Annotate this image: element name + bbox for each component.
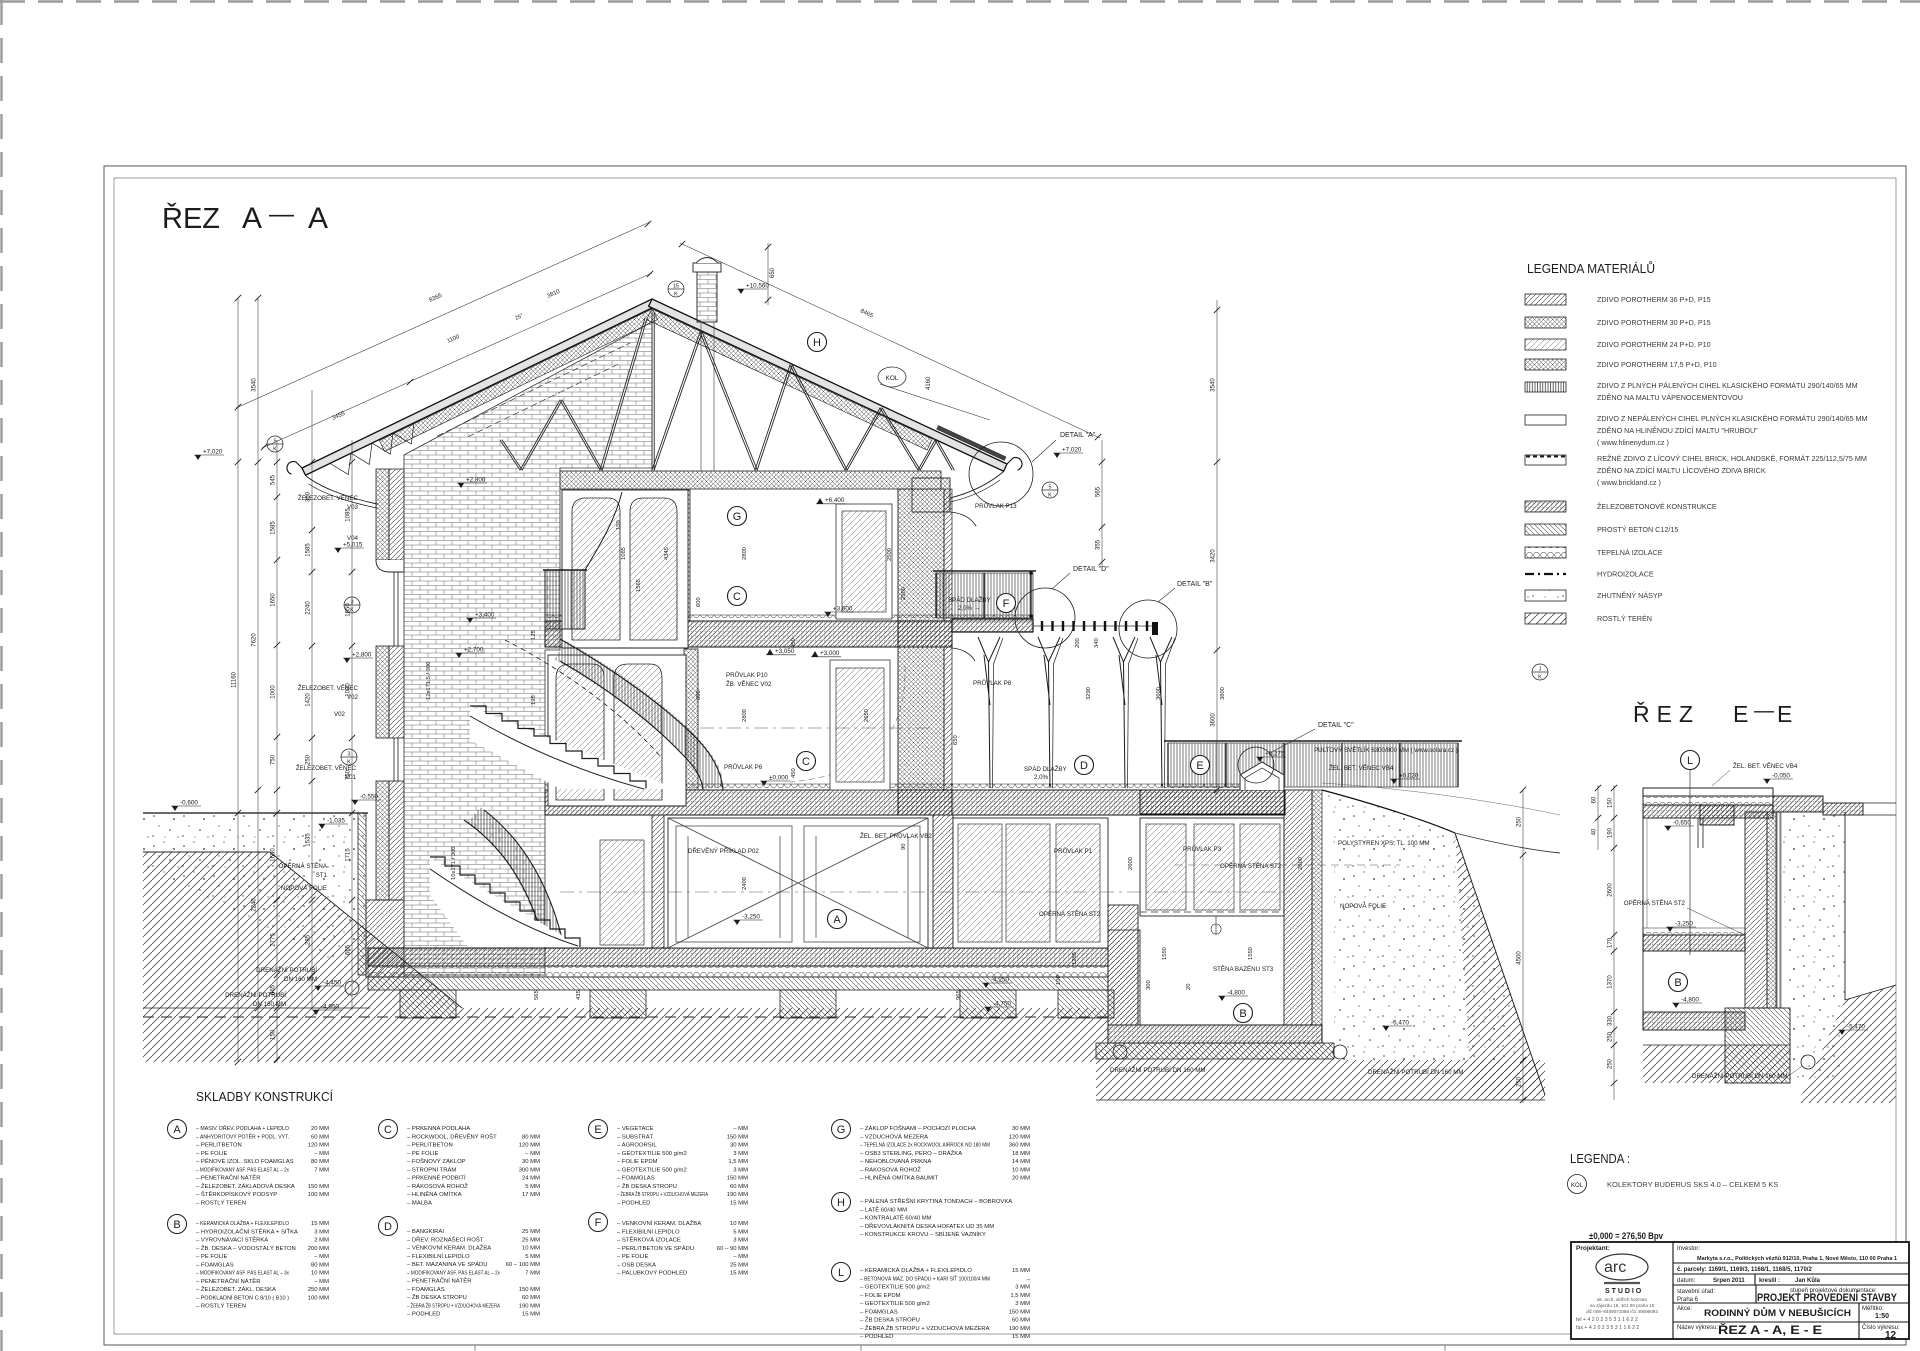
svg-text:2240: 2240: [306, 601, 312, 615]
svg-text:– HLINĚNÁ OMÍTKA BAUMIT: – HLINĚNÁ OMÍTKA BAUMIT: [860, 1174, 939, 1182]
svg-text:ZDIVO POROTHERM 30 P+D, P15: ZDIVO POROTHERM 30 P+D, P15: [1597, 318, 1711, 327]
svg-text:100 MM: 100 MM: [308, 1295, 329, 1301]
svg-text:+7,020: +7,020: [1062, 447, 1082, 454]
svg-text:+3,600: +3,600: [833, 606, 853, 613]
svg-text:30 MM: 30 MM: [1012, 1126, 1030, 1132]
svg-text:340: 340: [1094, 638, 1100, 648]
svg-text:– PERLITBETON VE SPÁDU: – PERLITBETON VE SPÁDU: [617, 1245, 694, 1252]
svg-text:– VZDUCHOVÁ MEZERA: – VZDUCHOVÁ MEZERA: [860, 1133, 928, 1140]
svg-text:330: 330: [1608, 1015, 1614, 1026]
svg-text:150: 150: [271, 1029, 277, 1040]
svg-text:4160: 4160: [926, 376, 932, 390]
svg-text:150: 150: [1608, 797, 1614, 808]
svg-text:355: 355: [1096, 539, 1102, 550]
svg-text:360 MM: 360 MM: [1009, 1143, 1030, 1149]
svg-text:ŽEL. BET. VĚNEC VB4: ŽEL. BET. VĚNEC VB4: [1329, 764, 1394, 772]
svg-text:250: 250: [1608, 1058, 1614, 1069]
svg-text:Měřítko:: Měřítko:: [1862, 1306, 1884, 1312]
svg-text:120 MM: 120 MM: [1009, 1134, 1030, 1140]
svg-text:190 MM: 190 MM: [519, 1303, 540, 1309]
svg-text:4345: 4345: [664, 547, 670, 560]
svg-text:+2,800: +2,800: [352, 652, 372, 659]
svg-text:30 MM: 30 MM: [522, 1159, 540, 1165]
svg-text:-4,450: -4,450: [323, 980, 341, 987]
svg-text:3290: 3290: [1086, 687, 1092, 700]
svg-text:– PĚNOVÉ IZOL. SKLO FOAMGLAS: – PĚNOVÉ IZOL. SKLO FOAMGLAS: [196, 1157, 294, 1165]
svg-text:– PERLITBETON: – PERLITBETON: [407, 1143, 453, 1149]
svg-text:– MM: – MM: [314, 1279, 329, 1285]
svg-text:NOPOVÁ FOLIE: NOPOVÁ FOLIE: [281, 885, 327, 892]
svg-text:– PE FOLIE: – PE FOLIE: [407, 1151, 439, 1157]
svg-text:15 MM: 15 MM: [1012, 1334, 1030, 1340]
svg-text:– PALUBKOVÝ PODHLED: – PALUBKOVÝ PODHLED: [617, 1270, 687, 1277]
svg-text:200 MM: 200 MM: [308, 1246, 329, 1252]
svg-text:14 MM: 14 MM: [1012, 1159, 1030, 1165]
svg-text:15 MM: 15 MM: [522, 1312, 540, 1318]
svg-text:REŽNÉ ZDIVO Z LÍCOVÝ CIHEL BRI: REŽNÉ ZDIVO Z LÍCOVÝ CIHEL BRICK, HOLAND…: [1597, 454, 1867, 463]
svg-text:– NEHOBLOVANÁ PRKNA: – NEHOBLOVANÁ PRKNA: [860, 1158, 931, 1165]
svg-text:150 MM: 150 MM: [519, 1287, 540, 1293]
svg-text:250: 250: [1608, 1031, 1614, 1042]
svg-text:300 MM: 300 MM: [519, 1167, 540, 1173]
svg-text:565: 565: [1096, 486, 1102, 497]
svg-text:125: 125: [531, 630, 537, 640]
svg-text:stavební úřad:: stavební úřad:: [1677, 1289, 1715, 1295]
svg-text:– PENETRAČNÍ NÁTĚR: – PENETRAČNÍ NÁTĚR: [196, 1174, 260, 1182]
svg-text:750: 750: [346, 769, 352, 780]
svg-text:– GEOTEXTILIE 500 g/m2: – GEOTEXTILIE 500 g/m2: [617, 1167, 687, 1173]
svg-text:-0,600: -0,600: [180, 800, 198, 807]
svg-text:1650: 1650: [271, 848, 277, 862]
svg-text:KOL: KOL: [885, 375, 898, 382]
svg-text:285: 285: [306, 934, 312, 945]
svg-text:arc: arc: [1604, 1259, 1626, 1276]
svg-text:č. parcely: 1169/1, 1169/3, 1: č. parcely: 1169/1, 1169/3, 1168/1, 1168…: [1677, 1267, 1812, 1273]
svg-text:600: 600: [696, 690, 702, 700]
svg-text:– ROSTLÝ TERÉN: – ROSTLÝ TERÉN: [196, 1303, 246, 1310]
svg-text:A: A: [833, 914, 841, 926]
svg-text:B: B: [173, 1219, 180, 1231]
svg-text:3 MM: 3 MM: [733, 1167, 748, 1173]
svg-text:750: 750: [271, 754, 277, 765]
svg-text:E: E: [1777, 701, 1792, 727]
svg-text:3540: 3540: [252, 378, 258, 392]
svg-text:– PODHLED: – PODHLED: [617, 1200, 650, 1206]
svg-text:F: F: [1003, 598, 1010, 610]
svg-text:– PERLITBETON: – PERLITBETON: [196, 1143, 242, 1149]
svg-text:ŘEZ A - A, E - E: ŘEZ A - A, E - E: [1718, 1324, 1822, 1337]
svg-text:2600: 2600: [1128, 857, 1134, 870]
svg-text:ZDIVO POROTHERM 36 P+D, P15: ZDIVO POROTHERM 36 P+D, P15: [1597, 295, 1711, 304]
svg-text:2650: 2650: [864, 709, 870, 722]
svg-text:fax + 4 2 0 2 3 5 3 1 1 6: fax + 4 2 0 2 3 5 3 1 1 6 2 2: [1576, 1325, 1639, 1331]
svg-text:15: 15: [673, 284, 679, 290]
svg-text:– FOAMGLAS: – FOAMGLAS: [196, 1262, 234, 1268]
svg-text:250: 250: [306, 754, 312, 765]
svg-text:SKLADBY KONSTRUKCÍ: SKLADBY KONSTRUKCÍ: [196, 1089, 333, 1104]
svg-text:5 MM: 5 MM: [525, 1254, 540, 1260]
svg-text:POLYSTYREN XPS, TL. 100 MM: POLYSTYREN XPS, TL. 100 MM: [1338, 840, 1430, 847]
svg-text:DŘEVĚNÝ PŘÍKLAD P02: DŘEVĚNÝ PŘÍKLAD P02: [688, 847, 759, 855]
svg-text:1715: 1715: [346, 848, 352, 862]
svg-text:3600: 3600: [1211, 713, 1217, 727]
svg-text:3600: 3600: [1156, 687, 1162, 700]
svg-text:– KERAMICKÁ DLAŽBA + FLEXILEPI: – KERAMICKÁ DLAŽBA + FLEXILEPIDLO: [860, 1266, 972, 1274]
svg-text:+2,800: +2,800: [466, 477, 486, 484]
svg-text:10 MM: 10 MM: [522, 1246, 540, 1252]
svg-text:Investor:: Investor:: [1677, 1246, 1700, 1252]
svg-text:B: B: [1239, 1008, 1246, 1020]
svg-text:ROSTLÝ TERÉN: ROSTLÝ TERÉN: [1597, 614, 1652, 623]
svg-text:– GEOTEXTILIE 500 g/m2: – GEOTEXTILIE 500 g/m2: [860, 1285, 930, 1291]
svg-text:+3,400: +3,400: [475, 612, 495, 619]
svg-text:tel + 4 2 0 2 3 5 3 1 1 6: tel + 4 2 0 2 3 5 3 1 1 6 2 2: [1576, 1317, 1638, 1323]
svg-text:—: —: [1754, 700, 1774, 722]
svg-text:150 MM: 150 MM: [1009, 1309, 1030, 1315]
svg-text:C: C: [802, 756, 810, 768]
svg-text:J: J: [1539, 667, 1542, 673]
svg-text:-4,800: -4,800: [1227, 990, 1245, 997]
svg-text:10 MM: 10 MM: [730, 1221, 748, 1227]
svg-text:1535: 1535: [306, 833, 312, 847]
svg-text:100 MM: 100 MM: [308, 1192, 329, 1198]
svg-text:– MM: – MM: [733, 1254, 748, 1260]
svg-text:1085: 1085: [621, 547, 627, 560]
svg-text:10x171 / 300: 10x171 / 300: [451, 846, 457, 880]
svg-text:12: 12: [1885, 1330, 1897, 1341]
svg-text:– VEGETACE: – VEGETACE: [617, 1126, 654, 1132]
svg-text:-5,470: -5,470: [1391, 1020, 1409, 1027]
svg-text:-0,050: -0,050: [1772, 773, 1790, 780]
svg-text:150 MM: 150 MM: [727, 1134, 748, 1140]
svg-text:( www.brickland.cz ): ( www.brickland.cz ): [1597, 478, 1661, 487]
svg-text:V02: V02: [334, 711, 346, 718]
svg-text:dič 006–6409071086 ičo 4069609: dič 006–6409071086 ičo 40696093: [1586, 1309, 1658, 1314]
svg-text:1565: 1565: [636, 579, 642, 592]
svg-text:L: L: [838, 1267, 844, 1279]
svg-text:NOPOVÁ FOLIE: NOPOVÁ FOLIE: [1340, 903, 1386, 910]
svg-text:ZDĚNO NA ZDÍCÍ MALTU LÍCOVÉHO: ZDĚNO NA ZDÍCÍ MALTU LÍCOVÉHO ZDIVA BRIC…: [1597, 466, 1766, 475]
svg-text:– FOAMGLAS: – FOAMGLAS: [407, 1287, 445, 1293]
svg-text:STĚNA BAZÉNU ST3: STĚNA BAZÉNU ST3: [1213, 965, 1274, 973]
svg-text:LEGENDA :: LEGENDA :: [1570, 1151, 1630, 1166]
svg-text:ZHUTNĚNÝ NÁSYP: ZHUTNĚNÝ NÁSYP: [1597, 591, 1663, 600]
svg-text:– ŽEBRA ŽB STROPU + VZDUCHOVÁ: – ŽEBRA ŽB STROPU + VZDUCHOVÁ MEZERA: [617, 1190, 708, 1198]
svg-text:ŽEL. BET. VĚNEC VB4: ŽEL. BET. VĚNEC VB4: [1733, 762, 1798, 770]
svg-text:60 – 100 MM: 60 – 100 MM: [506, 1262, 540, 1268]
svg-text:SPÁD DLAŽBY: SPÁD DLAŽBY: [1024, 765, 1067, 773]
svg-text:– ŠTĚRKOPÍSKOVÝ PODSYP: – ŠTĚRKOPÍSKOVÝ PODSYP: [196, 1190, 277, 1198]
svg-text:-5,470: -5,470: [1847, 1024, 1865, 1031]
svg-text:ZDĚNO NA HLINĚNOU ZDÍCÍ MALTU: ZDĚNO NA HLINĚNOU ZDÍCÍ MALTU "HRUBOU": [1597, 426, 1758, 435]
svg-text:Praha 6: Praha 6: [1677, 1297, 1699, 1303]
svg-text:2240: 2240: [252, 898, 258, 912]
svg-text:G: G: [733, 511, 742, 523]
svg-text:450: 450: [791, 638, 797, 648]
svg-text:K: K: [1538, 675, 1542, 681]
svg-text:– KONSTRUKCE KROVU – SBÍJENÉ V: – KONSTRUKCE KROVU – SBÍJENÉ VAZNÍKY: [860, 1231, 986, 1238]
svg-text:ST1: ST1: [316, 872, 328, 879]
svg-text:150: 150: [616, 520, 622, 530]
svg-text:190 MM: 190 MM: [1009, 1326, 1030, 1332]
svg-text:OPĚRNÁ STĚNA ST2: OPĚRNÁ STĚNA ST2: [1220, 862, 1282, 870]
svg-text:B: B: [1674, 977, 1681, 989]
svg-text:KOLEKTORY BUDERUS SKS 4.0 – CE: KOLEKTORY BUDERUS SKS 4.0 – CELKEM 5 KS: [1607, 1180, 1778, 1189]
svg-text:7 MM: 7 MM: [314, 1167, 329, 1173]
svg-text:+7,020: +7,020: [203, 449, 223, 456]
svg-text:-4,250: -4,250: [991, 977, 1009, 984]
svg-text:2600: 2600: [1298, 857, 1304, 870]
svg-text:– PODHLED: – PODHLED: [407, 1312, 440, 1318]
svg-text:– SUBSTRÁT: – SUBSTRÁT: [617, 1133, 654, 1140]
svg-text:DETAIL "B": DETAIL "B": [1177, 581, 1213, 588]
svg-text:250: 250: [1517, 1076, 1523, 1087]
svg-text:H: H: [813, 337, 821, 349]
svg-text:—: —: [269, 200, 294, 228]
svg-text:– GEOTEXTILIE 500 g/m2: – GEOTEXTILIE 500 g/m2: [617, 1151, 687, 1157]
svg-text:+3,000: +3,000: [820, 650, 840, 657]
svg-text:– MM: – MM: [733, 1126, 748, 1132]
svg-text:– HYDROIZOLAČNÍ STĚRKA + SÍŤKA: – HYDROIZOLAČNÍ STĚRKA + SÍŤKA: [196, 1227, 298, 1235]
svg-text:DRENÁŽNÍ POTRUBÍ: DRENÁŽNÍ POTRUBÍ: [256, 966, 317, 974]
svg-text:– FLEXIBILNÍ LEPIDLO: – FLEXIBILNÍ LEPIDLO: [617, 1228, 680, 1235]
svg-text:2,0% →: 2,0% →: [958, 605, 980, 612]
svg-text:– MM: – MM: [525, 1151, 540, 1157]
svg-text:2400: 2400: [742, 877, 748, 890]
svg-text:600: 600: [696, 597, 702, 607]
svg-text:60 MM: 60 MM: [311, 1134, 329, 1140]
svg-text:– MASIV. DŘEV. PODLAHA + LEPID: – MASIV. DŘEV. PODLAHA + LEPIDLO: [196, 1124, 289, 1132]
svg-text:– PENETRAČNÍ NÁTĚR: – PENETRAČNÍ NÁTĚR: [196, 1277, 260, 1285]
svg-text:E: E: [1733, 701, 1748, 727]
svg-text:( www.hlinenydum.cz ): ( www.hlinenydum.cz ): [1597, 438, 1669, 447]
svg-text:SPÁD DLAŽBY: SPÁD DLAŽBY: [948, 596, 991, 604]
svg-text:25 MM: 25 MM: [522, 1229, 540, 1235]
svg-text:250 MM: 250 MM: [308, 1287, 329, 1293]
svg-text:2600: 2600: [1608, 883, 1614, 897]
svg-text:-4,800: -4,800: [1681, 997, 1699, 1004]
svg-text:– DŘEV. ROZNÁŠECÍ ROŠT: – DŘEV. ROZNÁŠECÍ ROŠT: [407, 1235, 484, 1243]
svg-text:PRŮVLAK P6: PRŮVLAK P6: [724, 764, 763, 771]
svg-text:– PE FOLIE: – PE FOLIE: [196, 1151, 228, 1157]
svg-text:-0,550: -0,550: [360, 794, 378, 801]
svg-text:OPĚRNÁ STĚNA: OPĚRNÁ STĚNA: [279, 862, 328, 870]
svg-text:TEPELNÁ IZOLACE: TEPELNÁ IZOLACE: [1597, 548, 1663, 557]
svg-text:+5,015: +5,015: [343, 542, 363, 549]
svg-text:1550: 1550: [1162, 947, 1168, 960]
svg-text:– MODIFIKOVANÝ ASF. PÁS ELAST: – MODIFIKOVANÝ ASF. PÁS ELAST AL – 2x: [407, 1269, 500, 1276]
svg-text:3 MM: 3 MM: [1015, 1285, 1030, 1291]
svg-text:120 MM: 120 MM: [519, 1143, 540, 1149]
svg-text:1650: 1650: [346, 603, 352, 617]
svg-text:11160: 11160: [232, 671, 238, 687]
svg-text:2,0%: 2,0%: [1034, 774, 1049, 781]
svg-text:±0,000: ±0,000: [769, 775, 789, 782]
svg-text:– FOLIE EPDM: – FOLIE EPDM: [617, 1159, 658, 1165]
svg-text:ŘEZ: ŘEZ: [162, 202, 220, 235]
svg-text:2800: 2800: [742, 547, 748, 560]
svg-text:3 MM: 3 MM: [1015, 1301, 1030, 1307]
svg-text:1420: 1420: [306, 693, 312, 707]
svg-text:L: L: [1687, 755, 1693, 767]
svg-text:HYDROIZOLACE: HYDROIZOLACE: [1597, 570, 1654, 579]
svg-text:1285: 1285: [1072, 952, 1078, 965]
svg-text:665: 665: [271, 984, 277, 995]
svg-text:120 MM: 120 MM: [308, 1143, 329, 1149]
svg-text:– ŽB DESKA STROPU: – ŽB DESKA STROPU: [617, 1182, 677, 1190]
svg-text:– KERAMICKÁ DLAŽBA + FLEXILEPI: – KERAMICKÁ DLAŽBA + FLEXILEPIDLO: [196, 1219, 289, 1227]
svg-text:24 MM: 24 MM: [522, 1176, 540, 1182]
svg-text:250: 250: [1517, 816, 1523, 827]
svg-text:– ŽB DESKA STROPU: – ŽB DESKA STROPU: [407, 1293, 467, 1301]
svg-text:– ZÁKLOP FOŠNAMI – POCHOZÍ PLO: – ZÁKLOP FOŠNAMI – POCHOZÍ PLOCHA: [860, 1125, 976, 1132]
svg-text:K: K: [674, 292, 678, 298]
svg-text:– PE FOLIE: – PE FOLIE: [196, 1254, 228, 1260]
svg-text:5 MM: 5 MM: [525, 1184, 540, 1190]
svg-text:3540: 3540: [1211, 378, 1217, 392]
svg-text:-0,650: -0,650: [1673, 820, 1691, 827]
svg-text:1085: 1085: [346, 508, 352, 522]
svg-text:3 MM: 3 MM: [314, 1229, 329, 1235]
svg-text:965: 965: [956, 990, 962, 1000]
svg-text:200: 200: [1075, 638, 1081, 648]
svg-text:PRŮVLAK P10: PRŮVLAK P10: [726, 672, 768, 679]
svg-text:60: 60: [1592, 796, 1598, 803]
svg-text:-4,750: -4,750: [993, 1001, 1011, 1008]
svg-text:Akce:: Akce:: [1677, 1306, 1692, 1312]
svg-text:– PE FOLIE: – PE FOLIE: [617, 1254, 649, 1260]
svg-text:90: 90: [901, 844, 907, 850]
svg-text:C: C: [733, 591, 741, 603]
svg-text:10 MM: 10 MM: [1012, 1167, 1030, 1173]
svg-text:3420: 3420: [1211, 549, 1217, 563]
svg-text:1650: 1650: [271, 593, 277, 607]
svg-text:PROSTÝ BETON C12/15: PROSTÝ BETON C12/15: [1597, 525, 1678, 534]
svg-text:ZDĚNO NA MALTU VÁPENOCEMENTOVO: ZDĚNO NA MALTU VÁPENOCEMENTOVOU: [1597, 393, 1743, 402]
svg-text:datum:: datum:: [1677, 1278, 1696, 1284]
svg-text:150 MM: 150 MM: [308, 1184, 329, 1190]
svg-text:ZDIVO Z NEPÁLENÝCH CIHEL PLNÝC: ZDIVO Z NEPÁLENÝCH CIHEL PLNÝCH KLASICKÉ…: [1597, 414, 1868, 423]
svg-text:+0,020: +0,020: [1399, 773, 1419, 780]
svg-text:– MALBA: – MALBA: [407, 1200, 432, 1206]
svg-text:1585: 1585: [271, 521, 277, 535]
svg-text:– DŘEVOVLÁKNITÁ DESKA HOFATEX: – DŘEVOVLÁKNITÁ DESKA HOFATEX UD 35 MM: [860, 1222, 994, 1230]
svg-text:– FOŠNOVÝ ZÁKLOP: – FOŠNOVÝ ZÁKLOP: [407, 1158, 466, 1165]
svg-text:– FLEXIBILNÍ LEPIDLO: – FLEXIBILNÍ LEPIDLO: [407, 1253, 470, 1260]
svg-text:– FOAMGLAS: – FOAMGLAS: [860, 1309, 898, 1315]
svg-text:– PÁLENÁ STŘEŠNÍ KRYTINA TONDA: – PÁLENÁ STŘEŠNÍ KRYTINA TONDACH – BOBRO…: [860, 1197, 1012, 1205]
svg-text:15 MM: 15 MM: [730, 1271, 748, 1277]
svg-text:7 MM: 7 MM: [525, 1270, 540, 1276]
svg-text:G: G: [837, 1124, 846, 1136]
svg-text:kreslil :: kreslil :: [1759, 1278, 1780, 1284]
svg-text:15 MM: 15 MM: [1012, 1268, 1030, 1274]
svg-text:15 MM: 15 MM: [311, 1221, 329, 1227]
svg-text:– LATĚ 60/40 MM: – LATĚ 60/40 MM: [860, 1205, 907, 1213]
svg-text:PROJEKT PROVEDENÍ STAVBY: PROJEKT PROVEDENÍ STAVBY: [1757, 1291, 1898, 1304]
svg-text:na zájezdu 16, 101 00 praha 10: na zájezdu 16, 101 00 praha 10: [1590, 1303, 1655, 1308]
svg-text:DETAIL "A": DETAIL "A": [1060, 432, 1096, 439]
svg-text:E: E: [594, 1124, 601, 1136]
svg-text:E: E: [1196, 760, 1203, 772]
svg-text:Projektant:: Projektant:: [1576, 1245, 1610, 1252]
svg-text:2500: 2500: [887, 548, 893, 561]
svg-text:ŽEL. BET. PRŮVLAK VB2: ŽEL. BET. PRŮVLAK VB2: [860, 832, 932, 840]
svg-text:±0,000 = 276,50 Bpv: ±0,000 = 276,50 Bpv: [1589, 1231, 1663, 1241]
svg-text:2 MM: 2 MM: [314, 1238, 329, 1244]
svg-text:PULTOVÝ SVĚTLÍK 6300/800 MM (: PULTOVÝ SVĚTLÍK 6300/800 MM ( www.solara…: [1314, 746, 1458, 754]
svg-text:– ŽELEZOBET. ZÁKL. DESKA: – ŽELEZOBET. ZÁKL. DESKA: [196, 1285, 276, 1293]
svg-text:650: 650: [770, 267, 776, 278]
svg-text:3 MM: 3 MM: [733, 1151, 748, 1157]
svg-text:80 MM: 80 MM: [311, 1262, 329, 1268]
svg-text:– FOAMGLAS: – FOAMGLAS: [617, 1176, 655, 1182]
svg-text:Název výkresu:: Název výkresu:: [1677, 1325, 1718, 1331]
svg-text:– ROSTLÝ TERÉN: – ROSTLÝ TERÉN: [196, 1199, 246, 1206]
svg-text:– ŽB DESKA STROPU: – ŽB DESKA STROPU: [860, 1316, 920, 1324]
svg-text:360: 360: [306, 491, 312, 502]
svg-text:3800: 3800: [1220, 687, 1226, 700]
svg-text:PRŮVLAK P13: PRŮVLAK P13: [975, 503, 1017, 510]
svg-text:– ŽEBRA ŽB STROPU + VZDUCHOVÁ: – ŽEBRA ŽB STROPU + VZDUCHOVÁ MEZERA: [860, 1324, 990, 1332]
svg-text:– GEOTEXTILIE 500 g/m2: – GEOTEXTILIE 500 g/m2: [860, 1301, 930, 1307]
svg-text:1585: 1585: [306, 543, 312, 557]
svg-text:PRŮVLAK P8: PRŮVLAK P8: [973, 680, 1012, 687]
svg-text:F: F: [595, 1217, 602, 1229]
svg-text:ZDIVO POROTHERM 24 P+D, P10: ZDIVO POROTHERM 24 P+D, P10: [1597, 340, 1711, 349]
svg-text:ak. arch. oldřich hozman: ak. arch. oldřich hozman: [1597, 1297, 1647, 1302]
svg-text:17 MM: 17 MM: [522, 1192, 540, 1198]
svg-text:665: 665: [346, 944, 352, 955]
svg-text:-1,035: -1,035: [327, 818, 345, 825]
svg-text:2775: 2775: [271, 933, 277, 947]
svg-text:OPĚRNÁ STĚNA ST2: OPĚRNÁ STĚNA ST2: [1039, 910, 1101, 918]
svg-text:– MODIFIKOVANÝ ASF. PÁS ELAST: – MODIFIKOVANÝ ASF. PÁS ELAST AL – 2x: [196, 1166, 289, 1173]
svg-text:– PRKENNÉ PODBITÍ: – PRKENNÉ PODBITÍ: [407, 1175, 466, 1182]
svg-text:25 MM: 25 MM: [730, 1262, 748, 1268]
svg-text:1550: 1550: [1248, 947, 1254, 960]
svg-text:A: A: [242, 202, 262, 235]
svg-text:-3,250: -3,250: [742, 914, 760, 921]
svg-text:– VENKOVNÍ KERAM. DLAŽBA: – VENKOVNÍ KERAM. DLAŽBA: [407, 1244, 491, 1252]
svg-text:– PENETRAČNÍ NÁTĚR: – PENETRAČNÍ NÁTĚR: [407, 1277, 471, 1285]
svg-text:1:50: 1:50: [1875, 1313, 1889, 1320]
svg-text:650: 650: [953, 735, 959, 745]
svg-text:– PODKLADNÍ BETON C 8/10 ( B10: – PODKLADNÍ BETON C 8/10 ( B10 ): [196, 1294, 289, 1301]
svg-text:DRENÁŽNÍ POTRUBÍ DN 160 MM: DRENÁŽNÍ POTRUBÍ DN 160 MM: [1110, 1066, 1206, 1074]
svg-text:60 MM: 60 MM: [522, 1295, 540, 1301]
svg-text:– PRKENNÁ PODLAHA: – PRKENNÁ PODLAHA: [407, 1125, 470, 1132]
svg-text:A: A: [308, 202, 328, 235]
svg-text:– MM: – MM: [314, 1254, 329, 1260]
svg-text:4500: 4500: [1517, 951, 1523, 965]
svg-text:1370: 1370: [1608, 975, 1614, 989]
svg-text:K: K: [1048, 493, 1052, 499]
svg-text:– ŽELEZOBET. ZÁKLADOVÁ DESKA: – ŽELEZOBET. ZÁKLADOVÁ DESKA: [196, 1182, 295, 1190]
svg-text:– OSB3 STERLING, PERO – DRÁŽKA: – OSB3 STERLING, PERO – DRÁŽKA: [860, 1149, 962, 1157]
svg-text:– AGROORSIL: – AGROORSIL: [617, 1143, 657, 1149]
svg-text:ŘEZ: ŘEZ: [1633, 701, 1700, 727]
svg-text:20 MM: 20 MM: [311, 1126, 329, 1132]
svg-text:20: 20: [1186, 984, 1192, 990]
svg-text:1000: 1000: [271, 685, 277, 699]
svg-text:K: K: [273, 447, 277, 453]
svg-text:PRŮVLAK P1: PRŮVLAK P1: [1054, 848, 1093, 855]
svg-text:– MODIFIKOVANÝ ASF. PÁS ELAST: – MODIFIKOVANÝ ASF. PÁS ELAST AL – 3x: [196, 1270, 289, 1277]
svg-text:– VYROVNÁVACÍ STĚRKA: – VYROVNÁVACÍ STĚRKA: [196, 1236, 268, 1244]
svg-text:190: 190: [1608, 827, 1614, 838]
svg-text:10 MM: 10 MM: [311, 1271, 329, 1277]
